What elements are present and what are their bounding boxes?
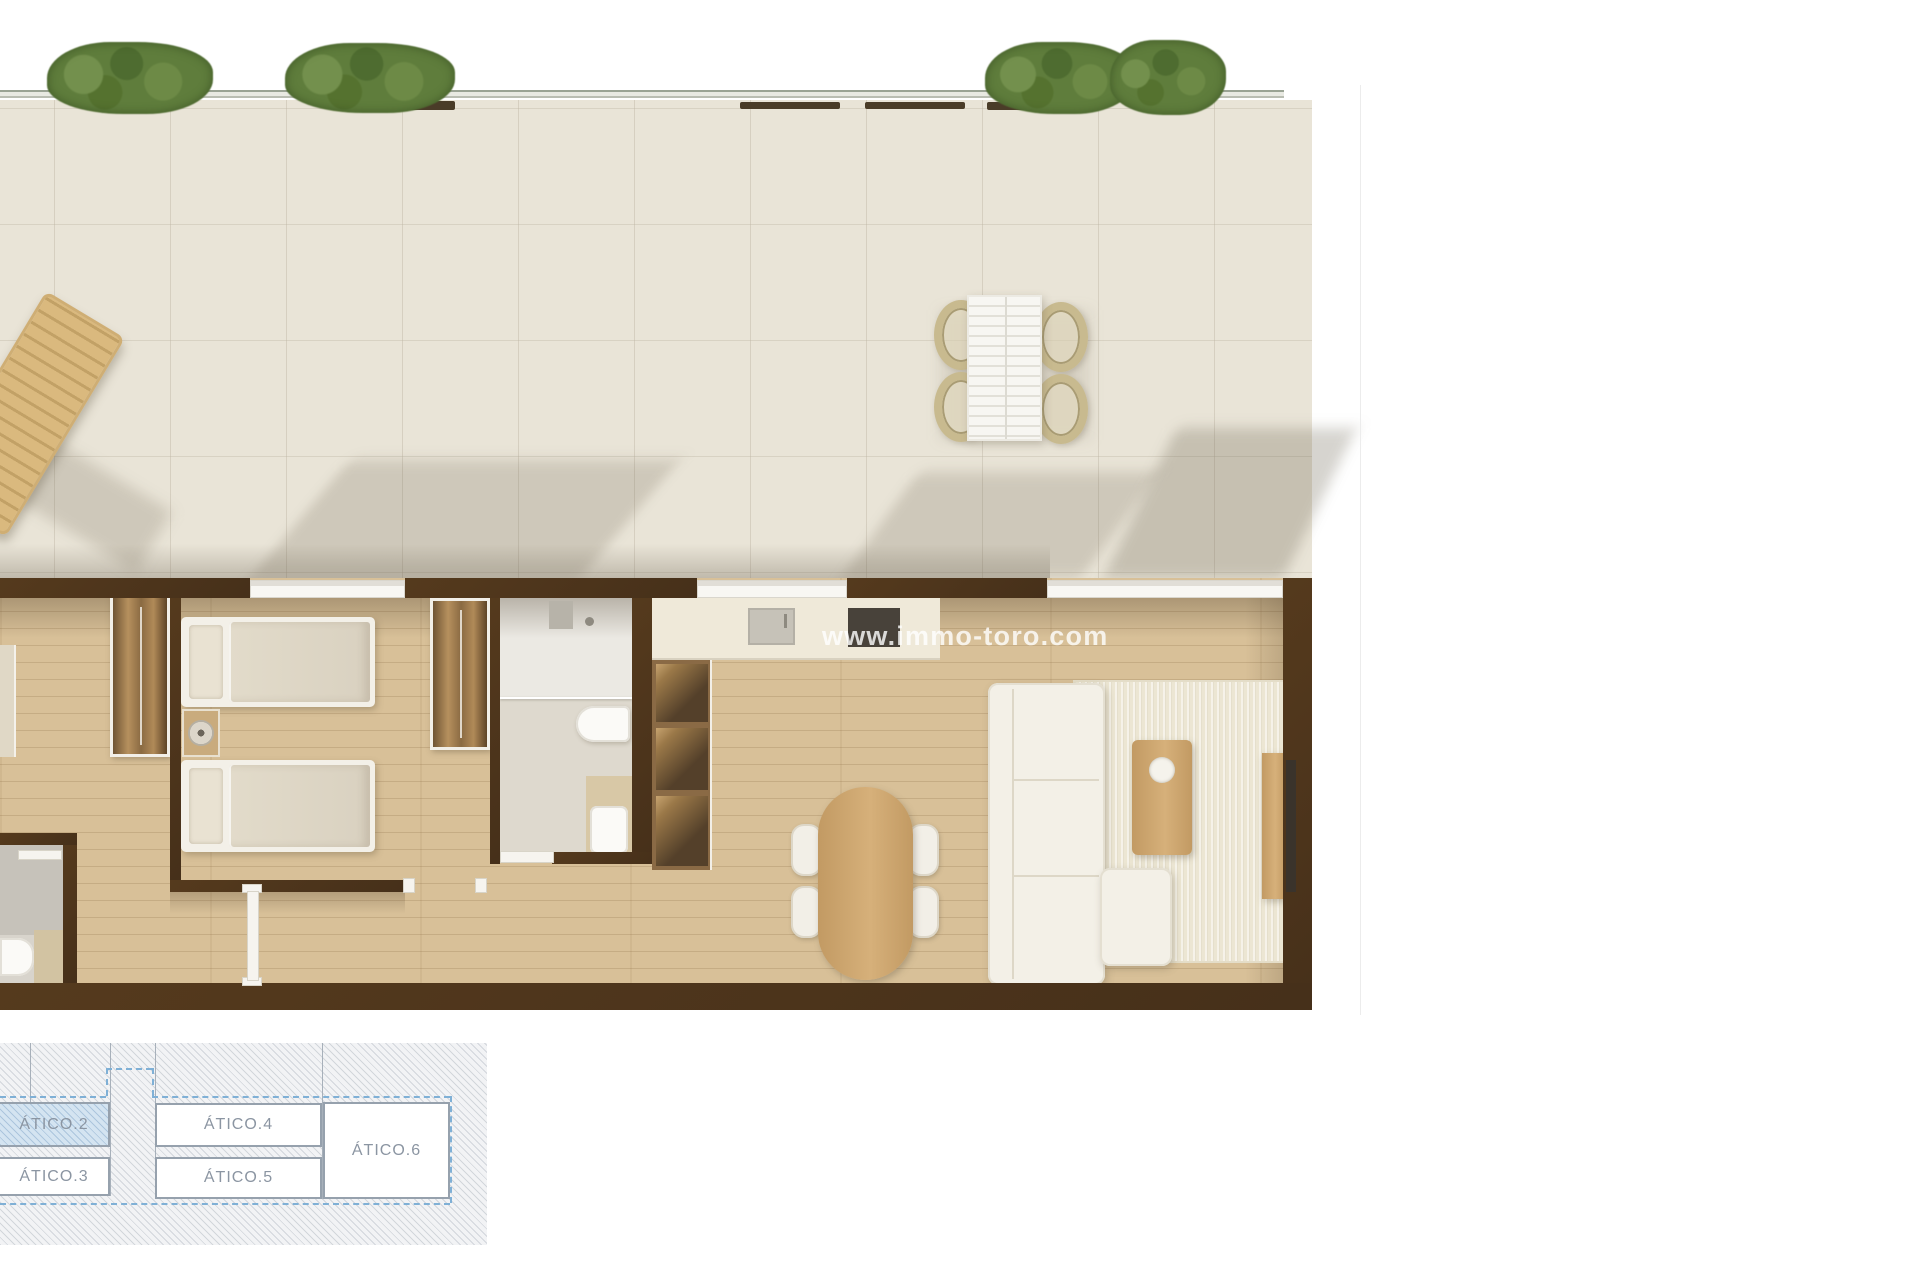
keyplan: ÁTICO.2 ÁTICO.3 ÁTICO.4 ÁTICO.5 ÁTICO.6 xyxy=(0,1043,487,1245)
wall xyxy=(405,578,697,598)
keyplan-dashed-line xyxy=(152,1096,450,1098)
keyplan-outline xyxy=(110,1043,111,1196)
watermark: www.immo-toro.com xyxy=(822,621,1108,652)
wall xyxy=(0,578,250,598)
kitchen-cabinets xyxy=(652,660,712,870)
bedroom-window xyxy=(250,580,405,598)
hedge-plants xyxy=(1110,40,1226,115)
sofa-back-line xyxy=(1012,689,1014,979)
duvet xyxy=(229,765,370,847)
entrance-door-leaf xyxy=(247,891,259,981)
wall xyxy=(63,845,77,983)
keyplan-dashed-line xyxy=(450,1096,452,1203)
keyplan-outline xyxy=(30,1043,31,1102)
keyplan-dashed-line xyxy=(106,1068,152,1070)
keyplan-unit-label: ÁTICO.3 xyxy=(19,1168,88,1186)
sofa-cushion-line xyxy=(1014,875,1099,877)
hedge-plants xyxy=(47,42,213,114)
keyplan-dashed-line xyxy=(0,1203,450,1205)
door-jamb xyxy=(403,878,415,893)
ensuite-vanity xyxy=(34,930,63,983)
shower-glass xyxy=(500,697,632,699)
dining-table xyxy=(818,787,913,980)
outdoor-dining-table xyxy=(967,295,1042,441)
cabinet-shelf xyxy=(656,728,708,790)
terrace-sliding-door xyxy=(1047,580,1283,598)
bathroom-door xyxy=(500,851,554,863)
keyplan-dashed-line xyxy=(106,1068,108,1096)
ensuite-door xyxy=(18,850,62,860)
keyplan-unit-label: ÁTICO.2 xyxy=(19,1116,88,1134)
outdoor-chair xyxy=(1034,302,1088,372)
sofa-chaise xyxy=(1100,868,1172,966)
keyplan-unit-atico6: ÁTICO.6 xyxy=(323,1102,450,1199)
cabinet-shelf xyxy=(656,664,708,722)
wall xyxy=(847,578,1047,598)
hedge-plants xyxy=(285,43,455,113)
wall xyxy=(490,598,500,864)
wall xyxy=(632,598,652,864)
ensuite-toilet xyxy=(0,938,34,976)
floor-plan-page: www.immo-toro.com ÁTICO.2 ÁTICO.3 ÁTICO.… xyxy=(0,0,1920,1280)
sofa xyxy=(988,683,1105,985)
bed-cutoff xyxy=(0,645,16,757)
kitchen-sink xyxy=(748,608,795,645)
kitchen-window xyxy=(697,580,847,598)
keyplan-unit-label: ÁTICO.6 xyxy=(352,1142,421,1160)
keyplan-unit-atico4: ÁTICO.4 xyxy=(155,1103,322,1147)
image-card-edge xyxy=(1360,85,1361,1015)
wall xyxy=(170,598,181,880)
wardrobe xyxy=(430,598,490,750)
planter-box xyxy=(740,102,840,109)
keyplan-dashed-line xyxy=(152,1068,154,1096)
keyplan-unit-atico3: ÁTICO.3 xyxy=(0,1157,110,1196)
pillow xyxy=(189,625,223,699)
keyplan-unit-label: ÁTICO.4 xyxy=(204,1116,273,1134)
wall xyxy=(0,833,77,845)
tv-screen xyxy=(1286,760,1296,892)
duvet xyxy=(229,622,370,702)
single-bed xyxy=(181,617,375,707)
keyplan-unit-atico5: ÁTICO.5 xyxy=(155,1157,322,1199)
wardrobe xyxy=(110,595,170,757)
keyplan-unit-atico2: ÁTICO.2 xyxy=(0,1102,110,1147)
cabinet-shelf xyxy=(656,796,708,866)
table-bowl xyxy=(1149,757,1175,783)
coffee-table xyxy=(1132,740,1192,855)
wall xyxy=(0,983,1312,1010)
keyplan-unit-label: ÁTICO.5 xyxy=(204,1169,273,1187)
wall-shadow xyxy=(170,892,405,914)
outdoor-chair xyxy=(1034,374,1088,444)
shower-panel xyxy=(549,601,573,629)
single-bed xyxy=(181,760,375,852)
wall xyxy=(552,852,652,864)
pillow xyxy=(189,768,223,844)
toilet xyxy=(576,706,630,742)
door-jamb xyxy=(475,878,487,893)
nightstand xyxy=(182,709,220,757)
table-lamp xyxy=(188,720,214,746)
keyplan-dashed-line xyxy=(0,1096,106,1098)
shower-head xyxy=(585,617,594,626)
faucet xyxy=(784,614,787,628)
planter-box xyxy=(865,102,965,109)
wall xyxy=(170,880,405,892)
bath-sink xyxy=(590,806,628,854)
sofa-cushion-line xyxy=(1014,779,1099,781)
